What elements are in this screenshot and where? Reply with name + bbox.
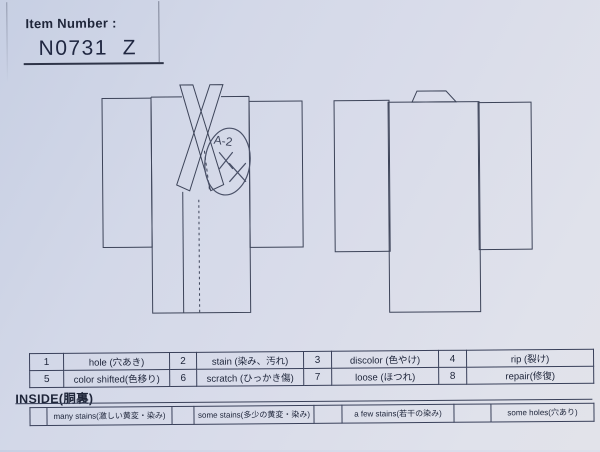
label-cell: some stains(多少の黄変・染み) <box>194 405 314 424</box>
inspection-sheet: Item Number : N0731 Z <box>0 0 600 452</box>
front-center-dashed-line <box>199 200 200 313</box>
code-cell: 4 <box>438 350 466 367</box>
label-cell: stain (染み、汚れ) <box>196 351 303 369</box>
label-cell: some holes(穴あり) <box>491 403 594 422</box>
code-cell: 1 <box>30 353 64 370</box>
item-number-underline <box>24 62 164 65</box>
back-right-sleeve <box>478 102 532 249</box>
table-row: many stains(激しい黄変・染み) some stains(多少の黄変・… <box>30 403 594 425</box>
back-collar <box>412 91 456 102</box>
front-right-sleeve <box>249 101 303 247</box>
label-cell: repair(修復) <box>467 366 594 384</box>
code-cell: 5 <box>30 370 64 387</box>
label-cell: many stains(激しい黄変・染み) <box>47 407 172 426</box>
condition-code-table: 1 hole (穴あき) 2 stain (染み、汚れ) 3 discolor … <box>29 349 594 388</box>
annotation-circle <box>201 126 253 198</box>
label-cell: color shifted(色移り) <box>64 370 170 388</box>
code-cell: 7 <box>304 368 332 385</box>
kimono-front-diagram <box>102 84 304 314</box>
front-dashed-seam-upper <box>204 151 209 192</box>
checkbox-cell <box>314 405 342 423</box>
label-cell: a few stains(若干の染み) <box>342 404 454 423</box>
code-cell: 8 <box>439 367 467 384</box>
front-collar-band-right <box>176 85 224 191</box>
x-mark-icon <box>230 163 246 181</box>
code-cell: 6 <box>170 369 197 386</box>
kimono-back-diagram <box>334 90 533 313</box>
label-cell: loose (ほつれ) <box>332 367 439 385</box>
label-cell: rip (裂け) <box>466 349 593 367</box>
inside-condition-table: many stains(激しい黄変・染み) some stains(多少の黄変・… <box>29 403 594 426</box>
front-body <box>151 96 251 313</box>
front-left-sleeve <box>102 98 152 247</box>
handwritten-annotation: A-2 <box>201 125 254 197</box>
label-cell: scratch (ひっかき傷) <box>197 368 304 386</box>
checkbox-cell <box>454 404 491 422</box>
back-body <box>388 102 481 313</box>
item-number-label: Item Number : <box>25 15 116 31</box>
inside-section-title: INSIDE(胴裏) <box>15 388 93 408</box>
annotation-code-text: A-2 <box>213 133 234 149</box>
item-number-value: N0731 Z <box>39 36 138 61</box>
checkbox-cell <box>30 407 47 425</box>
code-cell: 3 <box>303 351 331 368</box>
checkbox-cell <box>172 406 194 424</box>
header-divider-line <box>158 1 159 64</box>
paper-edge-line <box>6 2 8 82</box>
front-okumi-seam <box>183 192 184 313</box>
label-cell: discolor (色やけ) <box>331 350 438 368</box>
table-row: 5 color shifted(色移り) 6 scratch (ひっかき傷) 7… <box>30 366 594 387</box>
back-left-sleeve <box>334 100 390 251</box>
x-mark-icon <box>219 153 232 169</box>
label-cell: hole (穴あき) <box>64 353 170 371</box>
code-cell: 2 <box>169 352 196 369</box>
front-collar-band-left <box>180 85 224 191</box>
